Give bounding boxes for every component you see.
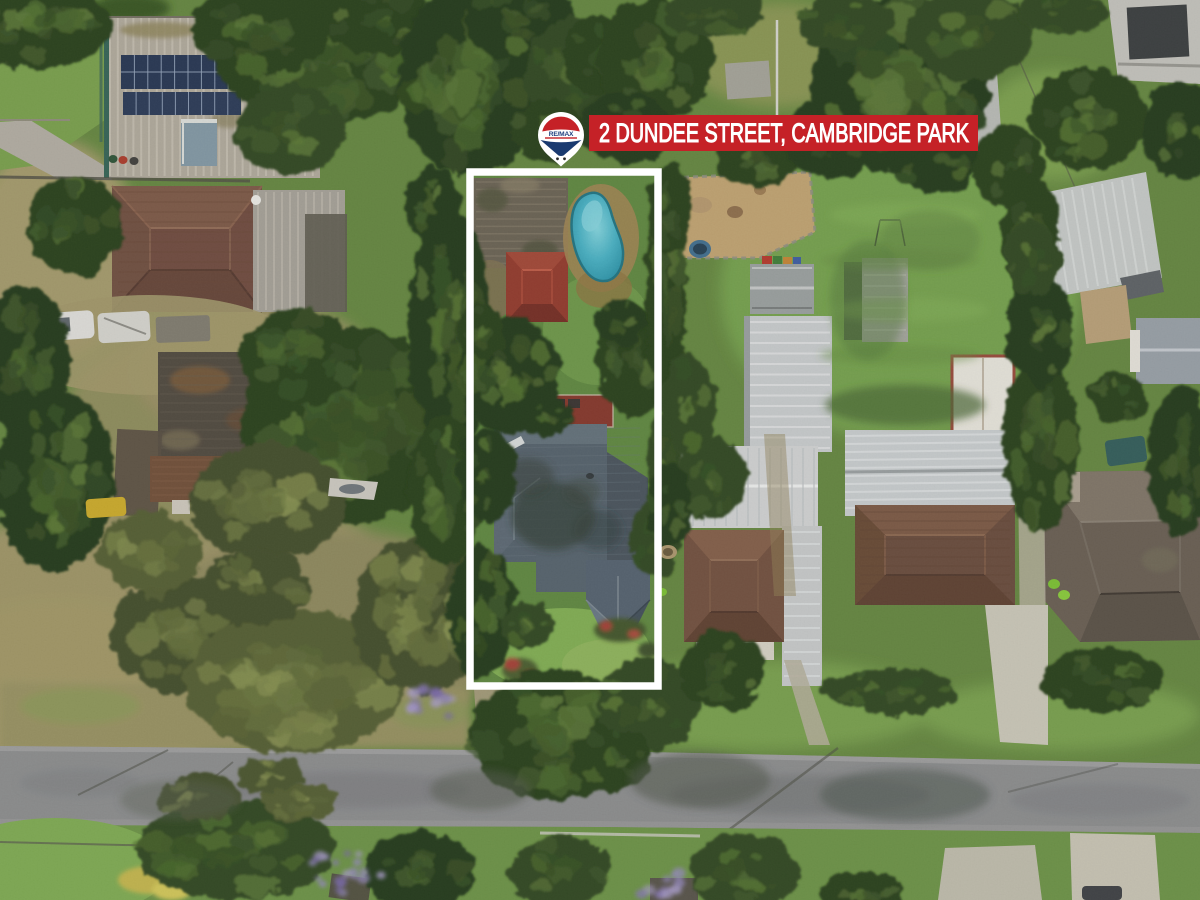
svg-text:2 DUNDEE STREET, CAMBRIDGE PAR: 2 DUNDEE STREET, CAMBRIDGE PARK bbox=[599, 118, 969, 148]
svg-text:RE/MAX: RE/MAX bbox=[549, 131, 574, 138]
